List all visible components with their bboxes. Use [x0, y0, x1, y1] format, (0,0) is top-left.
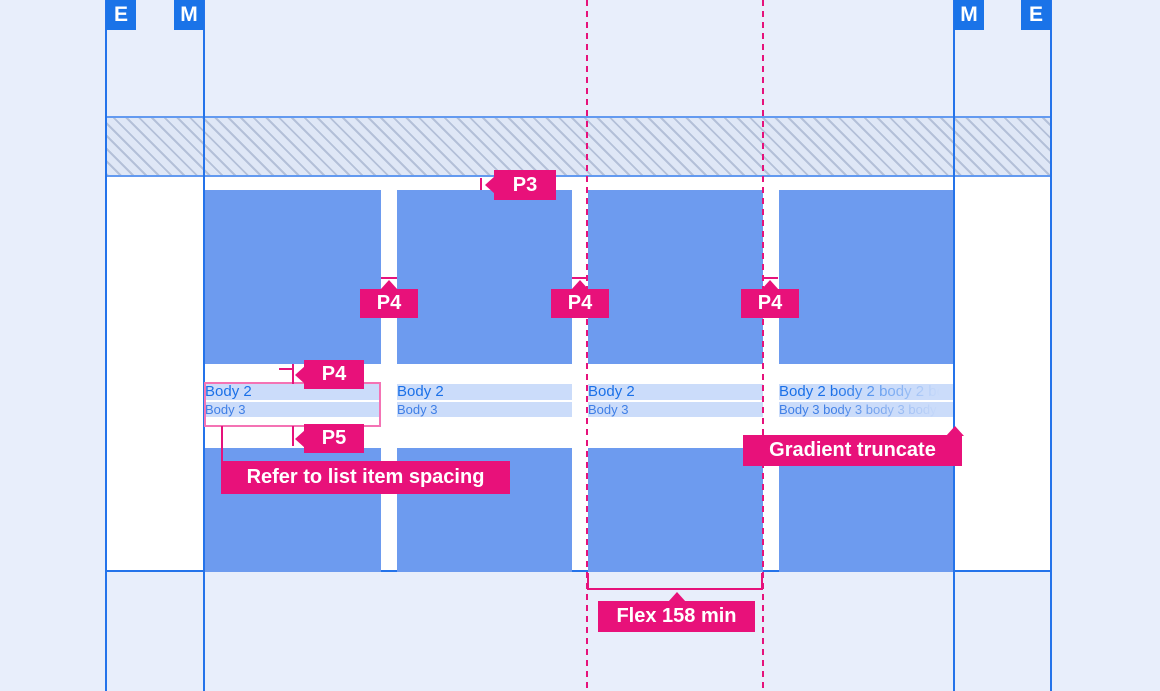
card-4-body2: Body 2 body 2 body 2 body 2	[779, 384, 955, 400]
chip-pointer-up	[668, 592, 686, 602]
p4-chip-text-spacing: P4	[304, 360, 364, 389]
p3-measure-tick	[480, 178, 482, 190]
flex-min-chip: Flex 158 min	[598, 601, 755, 632]
gradient-fade-overlay	[832, 402, 955, 417]
p4-text-measure-cap	[279, 368, 292, 370]
flex-bracket-right	[761, 573, 763, 589]
card-2-body2: Body 2	[397, 384, 572, 400]
card-3-image	[588, 190, 763, 364]
chip-pointer-left	[295, 430, 305, 448]
p4-gutter-measure-1	[381, 277, 397, 279]
chip-pointer-up	[946, 426, 964, 436]
flex-bracket-bottom	[587, 588, 763, 590]
note-connector-line	[221, 426, 223, 462]
card-4-image	[779, 190, 955, 364]
card-3-body3: Body 3	[588, 402, 763, 417]
card-3-body2: Body 2	[588, 384, 763, 400]
p4-chip-gutter-2: P4	[551, 289, 609, 318]
p3-chip: P3	[494, 170, 556, 200]
keyline-left-edge	[105, 0, 107, 691]
card-4-image-lower	[779, 448, 955, 572]
card-2-image	[397, 190, 572, 364]
p4-gutter-measure-3	[762, 277, 778, 279]
chip-pointer-left	[295, 366, 305, 384]
card-3-image-lower	[588, 448, 763, 572]
spacing-spec-canvas: E M M E Body 2 Body 3 Body 2 Body 3 Body…	[0, 0, 1160, 691]
p4-text-measure-tick	[292, 364, 294, 384]
list-item-spacing-note: Refer to list item spacing	[221, 461, 510, 494]
keyline-right-margin	[953, 0, 955, 691]
card-4-body3: Body 3 body 3 body 3 body 3 body 3	[779, 402, 955, 417]
hatched-reserved-band	[106, 116, 1052, 177]
keyline-left-margin	[203, 0, 205, 691]
p4-chip-gutter-1: P4	[360, 289, 418, 318]
p5-measure-tick	[292, 426, 294, 446]
chip-pointer-up	[380, 280, 398, 290]
keyline-marker-e-right: E	[1021, 0, 1051, 30]
card-2-body3: Body 3	[397, 402, 572, 417]
chip-pointer-up	[761, 280, 779, 290]
keyline-right-edge	[1050, 0, 1052, 691]
p4-gutter-measure-2	[572, 277, 588, 279]
gradient-fade-overlay	[832, 384, 955, 400]
card-1-image	[205, 190, 381, 364]
keyline-marker-m-right: M	[954, 0, 984, 30]
p5-chip: P5	[304, 424, 364, 453]
keyline-marker-e-left: E	[106, 0, 136, 30]
p4-chip-gutter-3: P4	[741, 289, 799, 318]
chip-pointer-left	[485, 176, 495, 194]
chip-pointer-up	[571, 280, 589, 290]
gradient-truncate-note: Gradient truncate	[743, 435, 962, 466]
flex-bracket-left	[587, 573, 589, 589]
keyline-marker-m-left: M	[174, 0, 204, 30]
